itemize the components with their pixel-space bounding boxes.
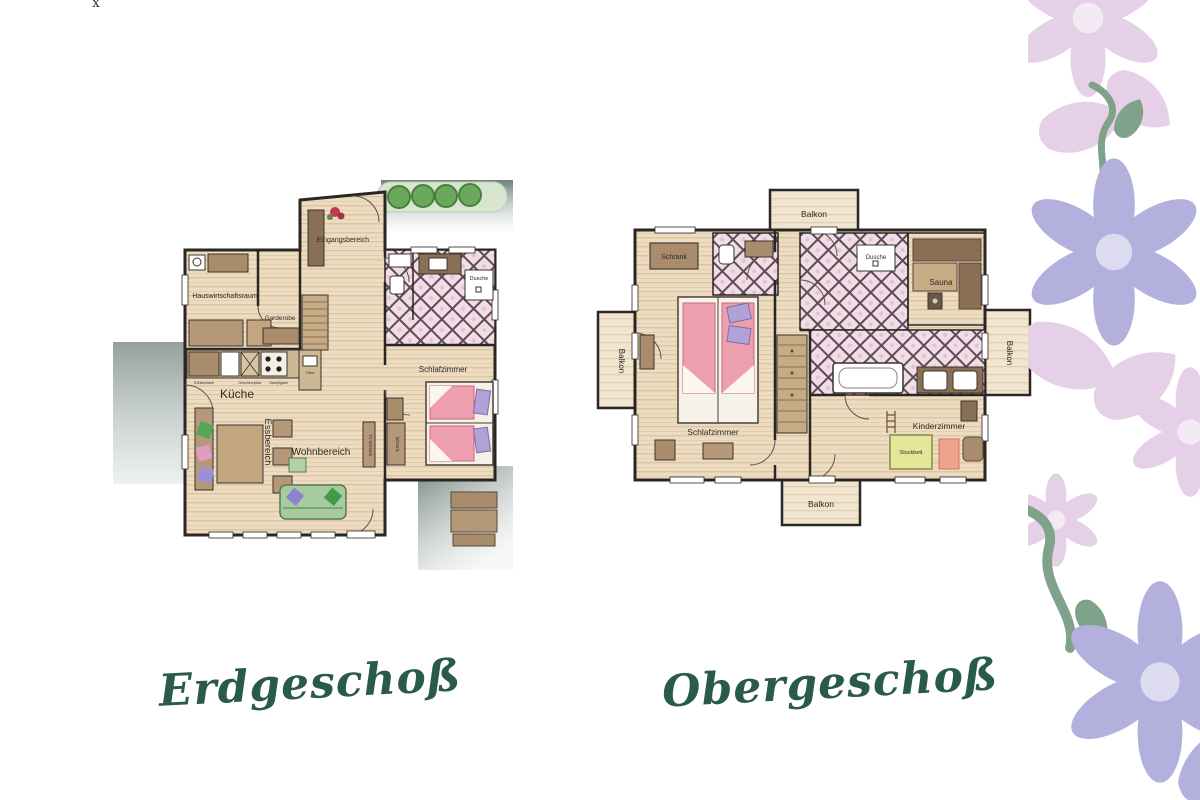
label-essbereich: Essbereich [262,419,273,466]
label-stockbett: Stockbett [900,450,923,456]
pillow [727,326,751,345]
pillow [473,427,490,453]
toilet [719,245,734,264]
label-sauna: Sauna [929,278,953,287]
chair [655,440,675,460]
label-schlafzimmer-og: Schlafzimmer [687,427,739,437]
floorplan-obergeschoss: Balkon Balkon Balkon Balkon Schrank Dusc… [595,185,1035,530]
stool [289,458,306,472]
pillow [473,389,490,415]
kids-bed [939,439,959,469]
toilet [390,276,404,294]
label-kueche: Küche [220,387,254,401]
sauna-bench-side [959,263,981,309]
label-wohnbereich: Wohnbereich [292,447,351,458]
label-balkon-left: Balkon [617,349,626,373]
chair [273,420,292,437]
label-dampfgarer: Dampfgarer [270,381,290,385]
label-ofen: Ofen [306,370,315,375]
vanity [745,241,773,257]
kitchen-sink [221,352,239,376]
label-garderobe: Garderobe [264,315,295,322]
dresser [640,335,654,369]
label-kuehlschrank: Kühlschrank [194,381,214,385]
label-hauswirtschaftsraum: Hauswirtschaftsraum [192,293,258,300]
dresser [961,401,977,421]
terrace-loungers [451,492,497,546]
label-balkon-bottom: Balkon [808,499,834,509]
chair [963,437,983,461]
label-tv-schrank: TV-Schrank [368,434,373,457]
label-schlafzimmer-eg: Schlafzimmer [419,365,468,374]
sauna-bench-top [913,239,981,261]
floor-title-erdgeschoss: Erdgeschoß [149,650,471,718]
coat-rack [263,328,299,344]
label-schrank-og: Schrank [661,254,687,261]
page-canvas: x [0,0,1200,800]
label-dusche-og: Dusche [866,255,887,261]
floral-border-decoration [1028,0,1200,800]
floorplan-erdgeschoss: Eingangsbereich Hauswirtschaftsraum Gard… [113,180,513,570]
staircase [777,335,807,433]
basin [923,371,947,390]
label-balkon-top: Balkon [801,209,827,219]
watermark-x: x [92,0,100,11]
cushion-purple [198,467,215,484]
stove [261,352,287,376]
label-geschirrspueler: Geschirrspüler [238,381,262,385]
staircase [302,295,328,350]
fridge [189,352,219,376]
label-kinderzimmer: Kinderzimmer [913,421,966,431]
label-schrank-eg: Schrank [395,436,400,452]
basin [953,371,977,390]
dining-table [217,425,263,483]
label-eingangsbereich: Eingangsbereich [317,237,369,244]
floor-title-obergeschoss: Obergeschoß [661,649,993,717]
label-dusche-eg: Dusche [470,276,489,282]
label-balkon-right: Balkon [1005,341,1014,365]
hedge-with-bushes [377,182,507,212]
bench [703,443,733,459]
shower-box [465,270,493,300]
basin [429,258,447,270]
